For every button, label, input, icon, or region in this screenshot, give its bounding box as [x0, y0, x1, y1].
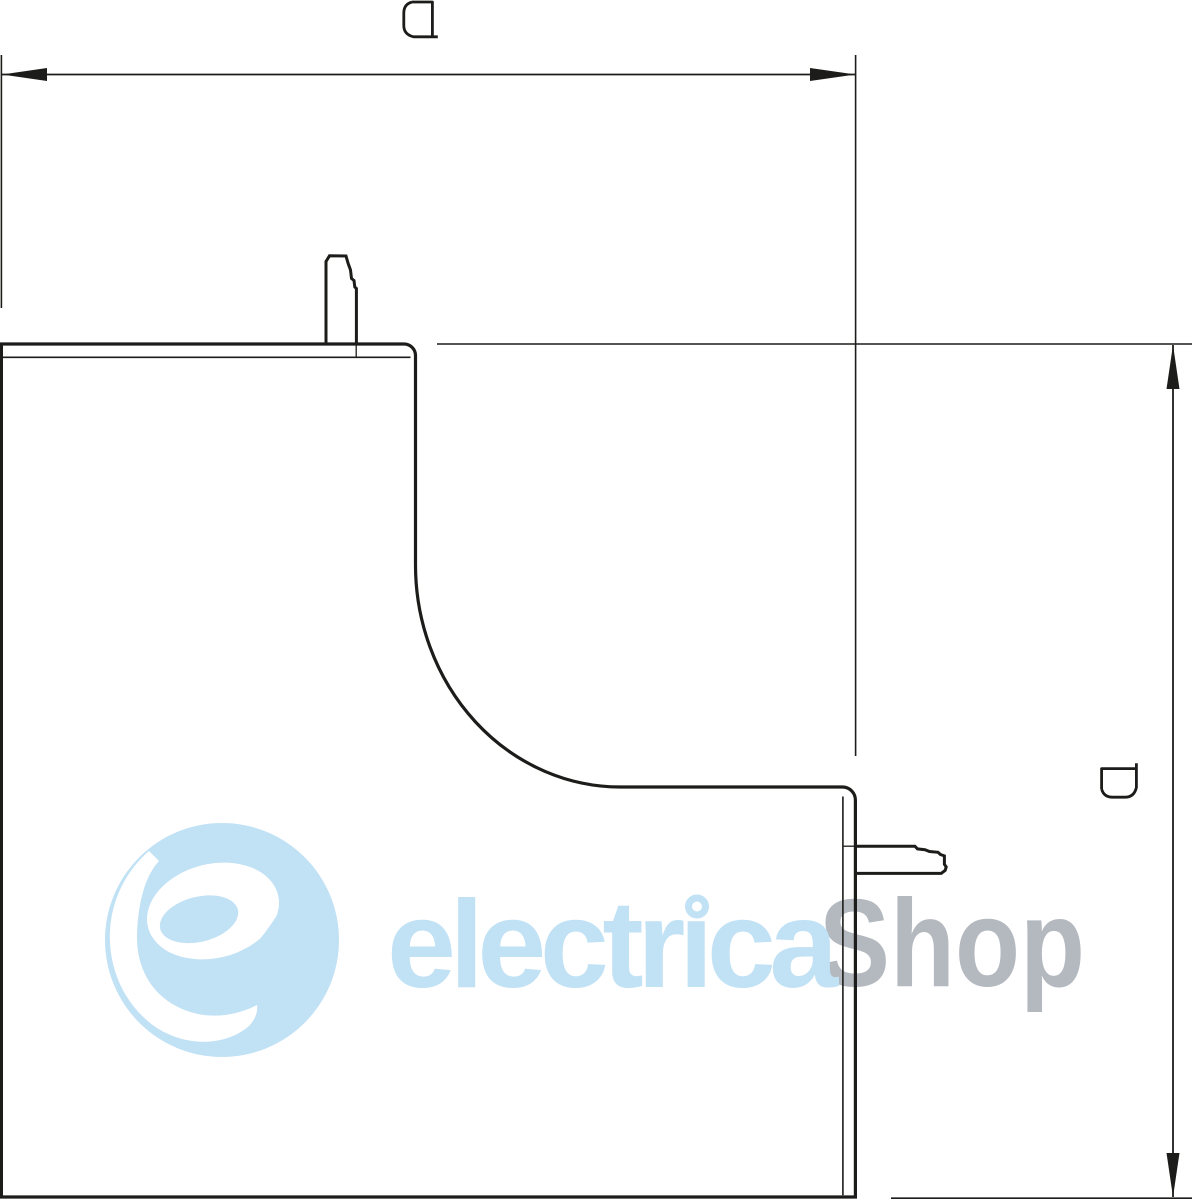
svg-text:electrıca: electrıca: [387, 876, 839, 1014]
svg-text:Shop: Shop: [819, 875, 1085, 1013]
